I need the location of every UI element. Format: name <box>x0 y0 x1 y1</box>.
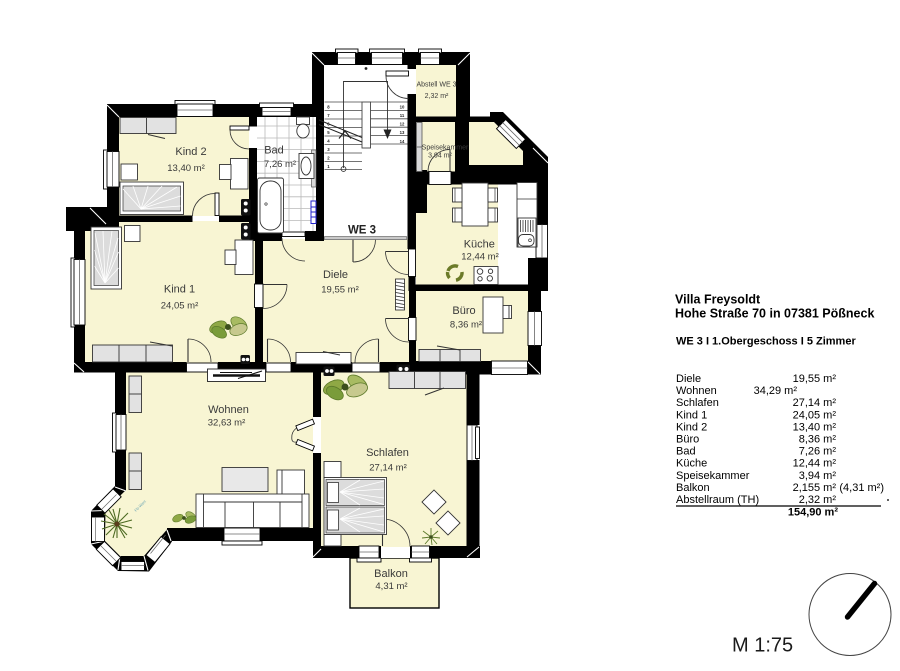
svg-text:Speisekammer: Speisekammer <box>676 470 750 482</box>
svg-text:Abstell WE 3: Abstell WE 3 <box>416 82 456 89</box>
svg-text:12,44 m²: 12,44 m² <box>793 458 837 470</box>
svg-text:19,55 m²: 19,55 m² <box>793 373 837 385</box>
svg-text:14: 14 <box>400 139 405 144</box>
svg-text:Wohnen: Wohnen <box>208 404 249 416</box>
svg-text:2,32 m²: 2,32 m² <box>799 494 837 506</box>
svg-text:Büro: Büro <box>676 434 699 446</box>
svg-text:24,05 m²: 24,05 m² <box>161 301 199 312</box>
svg-text:12: 12 <box>400 122 405 127</box>
svg-text:19,55 m²: 19,55 m² <box>321 284 359 295</box>
svg-text:Bad: Bad <box>264 145 284 157</box>
svg-text:24,05 m²: 24,05 m² <box>793 409 837 421</box>
svg-text:Balkon: Balkon <box>676 482 710 494</box>
svg-text:WE 3: WE 3 <box>348 225 376 237</box>
svg-text:2,32 m²: 2,32 m² <box>425 93 449 100</box>
svg-text:3,94 m²: 3,94 m² <box>428 153 452 160</box>
svg-text:Schlafen: Schlafen <box>366 447 409 459</box>
svg-text:13,40 m²: 13,40 m² <box>793 421 837 433</box>
svg-text:32,63 m²: 32,63 m² <box>208 418 246 429</box>
svg-text:2,155 m²: 2,155 m² <box>793 482 837 494</box>
svg-text:(4,31 m²): (4,31 m²) <box>839 482 884 494</box>
svg-text:7,26 m²: 7,26 m² <box>264 159 296 170</box>
svg-text:Diele: Diele <box>323 269 348 281</box>
svg-text:Balkon: Balkon <box>374 568 408 580</box>
svg-text:8,36 m²: 8,36 m² <box>450 320 482 331</box>
svg-text:Bad: Bad <box>676 446 696 458</box>
svg-text:7,26 m²: 7,26 m² <box>799 446 837 458</box>
svg-text:Kind 2: Kind 2 <box>676 421 707 433</box>
svg-text:12,44 m²: 12,44 m² <box>461 252 499 263</box>
svg-text:Büro: Büro <box>452 305 475 317</box>
svg-text:10: 10 <box>400 105 405 110</box>
svg-text:Küche: Küche <box>464 239 495 251</box>
svg-text:27,14 m²: 27,14 m² <box>369 463 407 474</box>
svg-text:11: 11 <box>400 113 405 118</box>
svg-text:13: 13 <box>400 130 405 135</box>
svg-text:Küche: Küche <box>676 458 707 470</box>
svg-text:Wohnen: Wohnen <box>676 385 717 397</box>
svg-text:34,29 m²: 34,29 m² <box>754 385 798 397</box>
svg-text:Diele: Diele <box>676 373 701 385</box>
svg-text:154,90 m²: 154,90 m² <box>788 507 838 519</box>
svg-text:Kind 1: Kind 1 <box>676 409 707 421</box>
svg-text:Kind 2: Kind 2 <box>175 146 206 158</box>
svg-text:WE 3 I 1.Obergeschoss I 5 Zimm: WE 3 I 1.Obergeschoss I 5 Zimmer <box>676 336 856 348</box>
svg-text:8,36 m²: 8,36 m² <box>799 434 837 446</box>
svg-text:M 1:75: M 1:75 <box>732 635 793 657</box>
svg-text:3,94 m²: 3,94 m² <box>799 470 837 482</box>
svg-text:Hohe Straße 70 in 07381 Pößnec: Hohe Straße 70 in 07381 Pößneck <box>675 307 874 321</box>
svg-text:Kind 1: Kind 1 <box>164 284 195 296</box>
svg-text:4,31 m²: 4,31 m² <box>375 581 407 592</box>
svg-text:13,40 m²: 13,40 m² <box>167 163 205 174</box>
svg-text:27,14 m²: 27,14 m² <box>793 397 837 409</box>
svg-text:Schlafen: Schlafen <box>676 397 719 409</box>
svg-text:Abstellraum (TH): Abstellraum (TH) <box>676 494 759 506</box>
svg-text:Speisekammer: Speisekammer <box>422 145 469 152</box>
svg-text:Villa Freysoldt: Villa Freysoldt <box>675 293 761 307</box>
